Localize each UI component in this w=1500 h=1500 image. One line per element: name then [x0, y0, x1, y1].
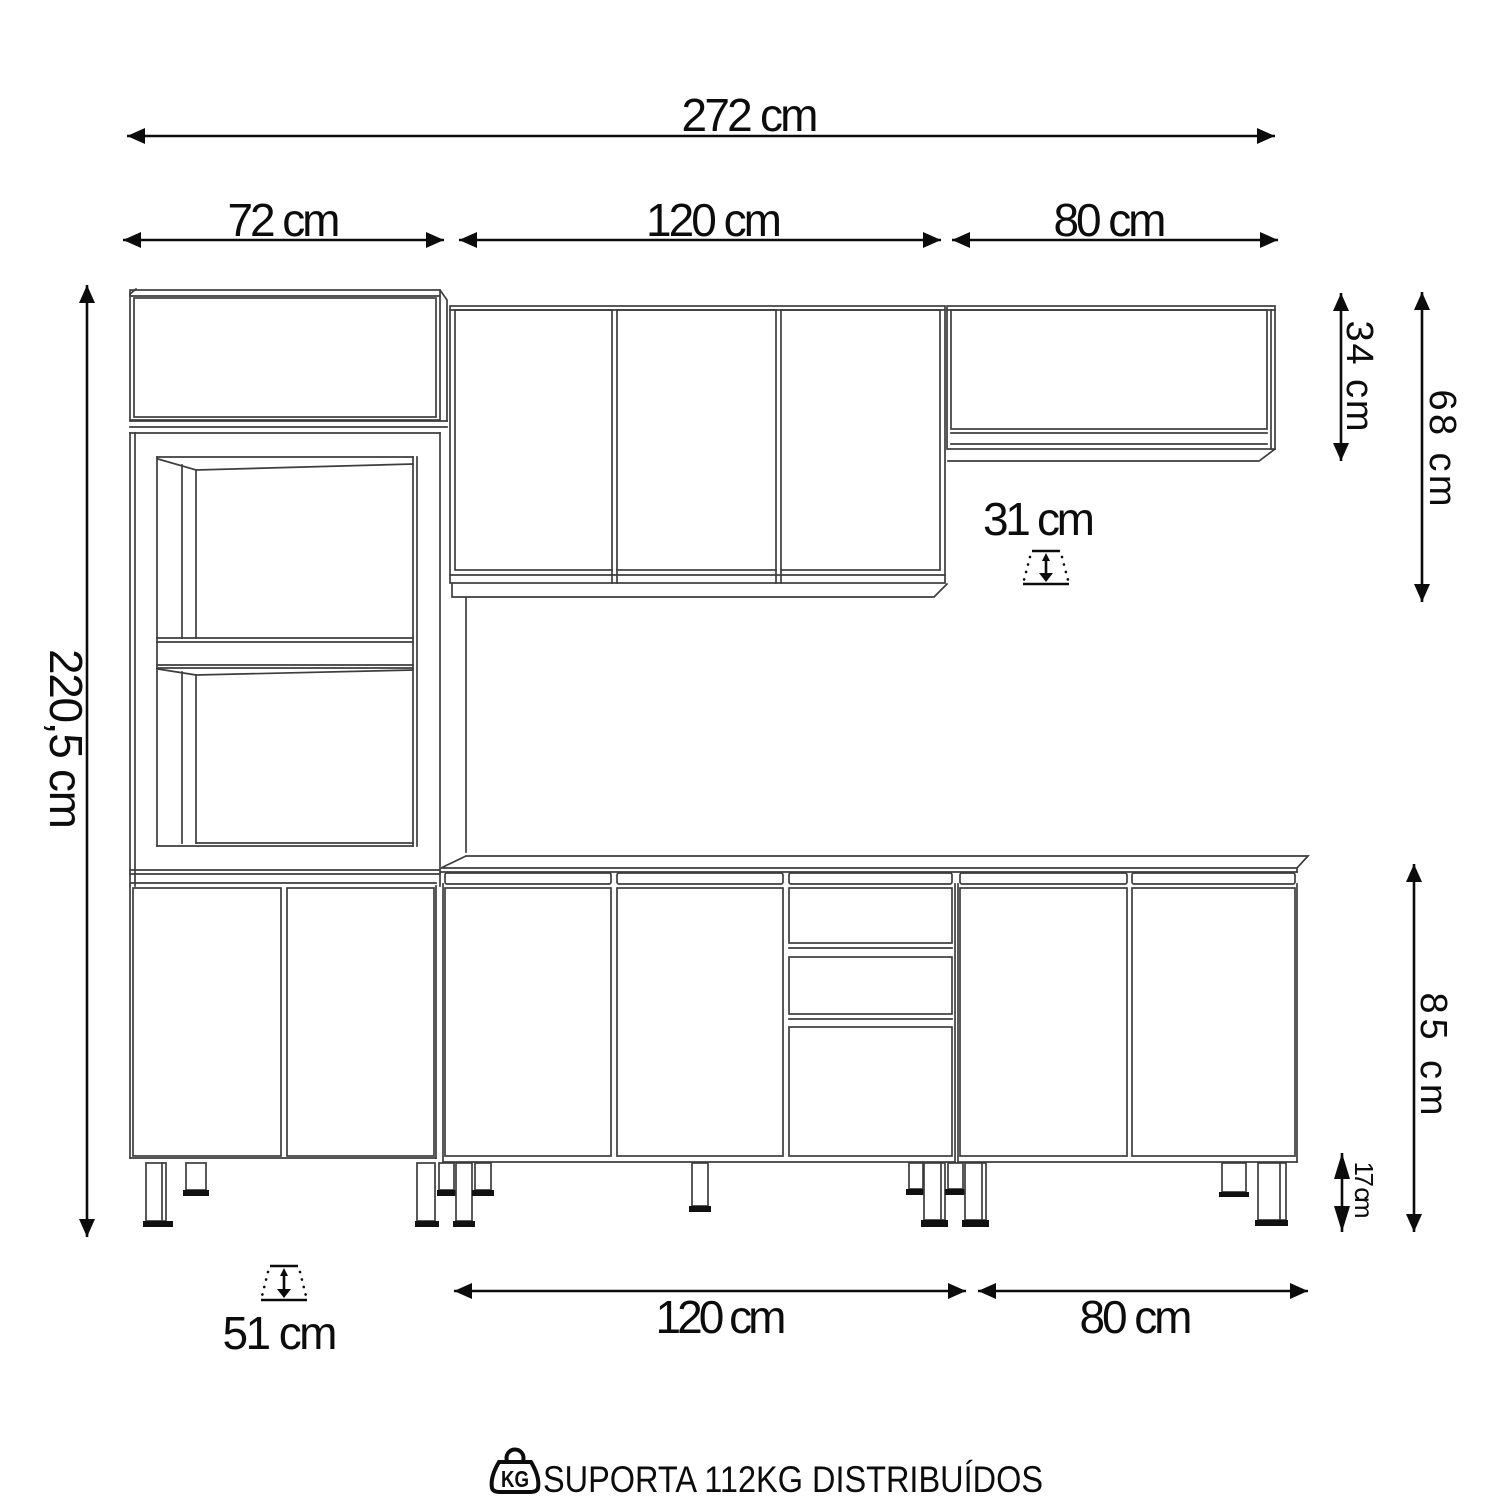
- svg-text:31 cm: 31 cm: [983, 493, 1095, 545]
- svg-text:SUPORTA 112KG DISTRIBUÍDOS: SUPORTA 112KG DISTRIBUÍDOS: [543, 1459, 1043, 1500]
- svg-text:120 cm: 120 cm: [646, 194, 782, 246]
- svg-text:KG: KG: [501, 1466, 529, 1492]
- svg-text:34 cm: 34 cm: [1338, 321, 1380, 432]
- svg-text:80 cm: 80 cm: [1080, 1291, 1193, 1343]
- svg-text:85 cm: 85 cm: [1412, 993, 1454, 1116]
- svg-text:220,5 cm: 220,5 cm: [40, 649, 92, 829]
- svg-text:80 cm: 80 cm: [1054, 194, 1167, 246]
- svg-text:68 cm: 68 cm: [1421, 390, 1463, 507]
- svg-text:120 cm: 120 cm: [656, 1291, 787, 1343]
- svg-text:72 cm: 72 cm: [228, 194, 341, 246]
- svg-text:51 cm: 51 cm: [223, 1307, 338, 1359]
- svg-text:272 cm: 272 cm: [682, 89, 819, 141]
- svg-text:17 cm: 17 cm: [1349, 1162, 1379, 1219]
